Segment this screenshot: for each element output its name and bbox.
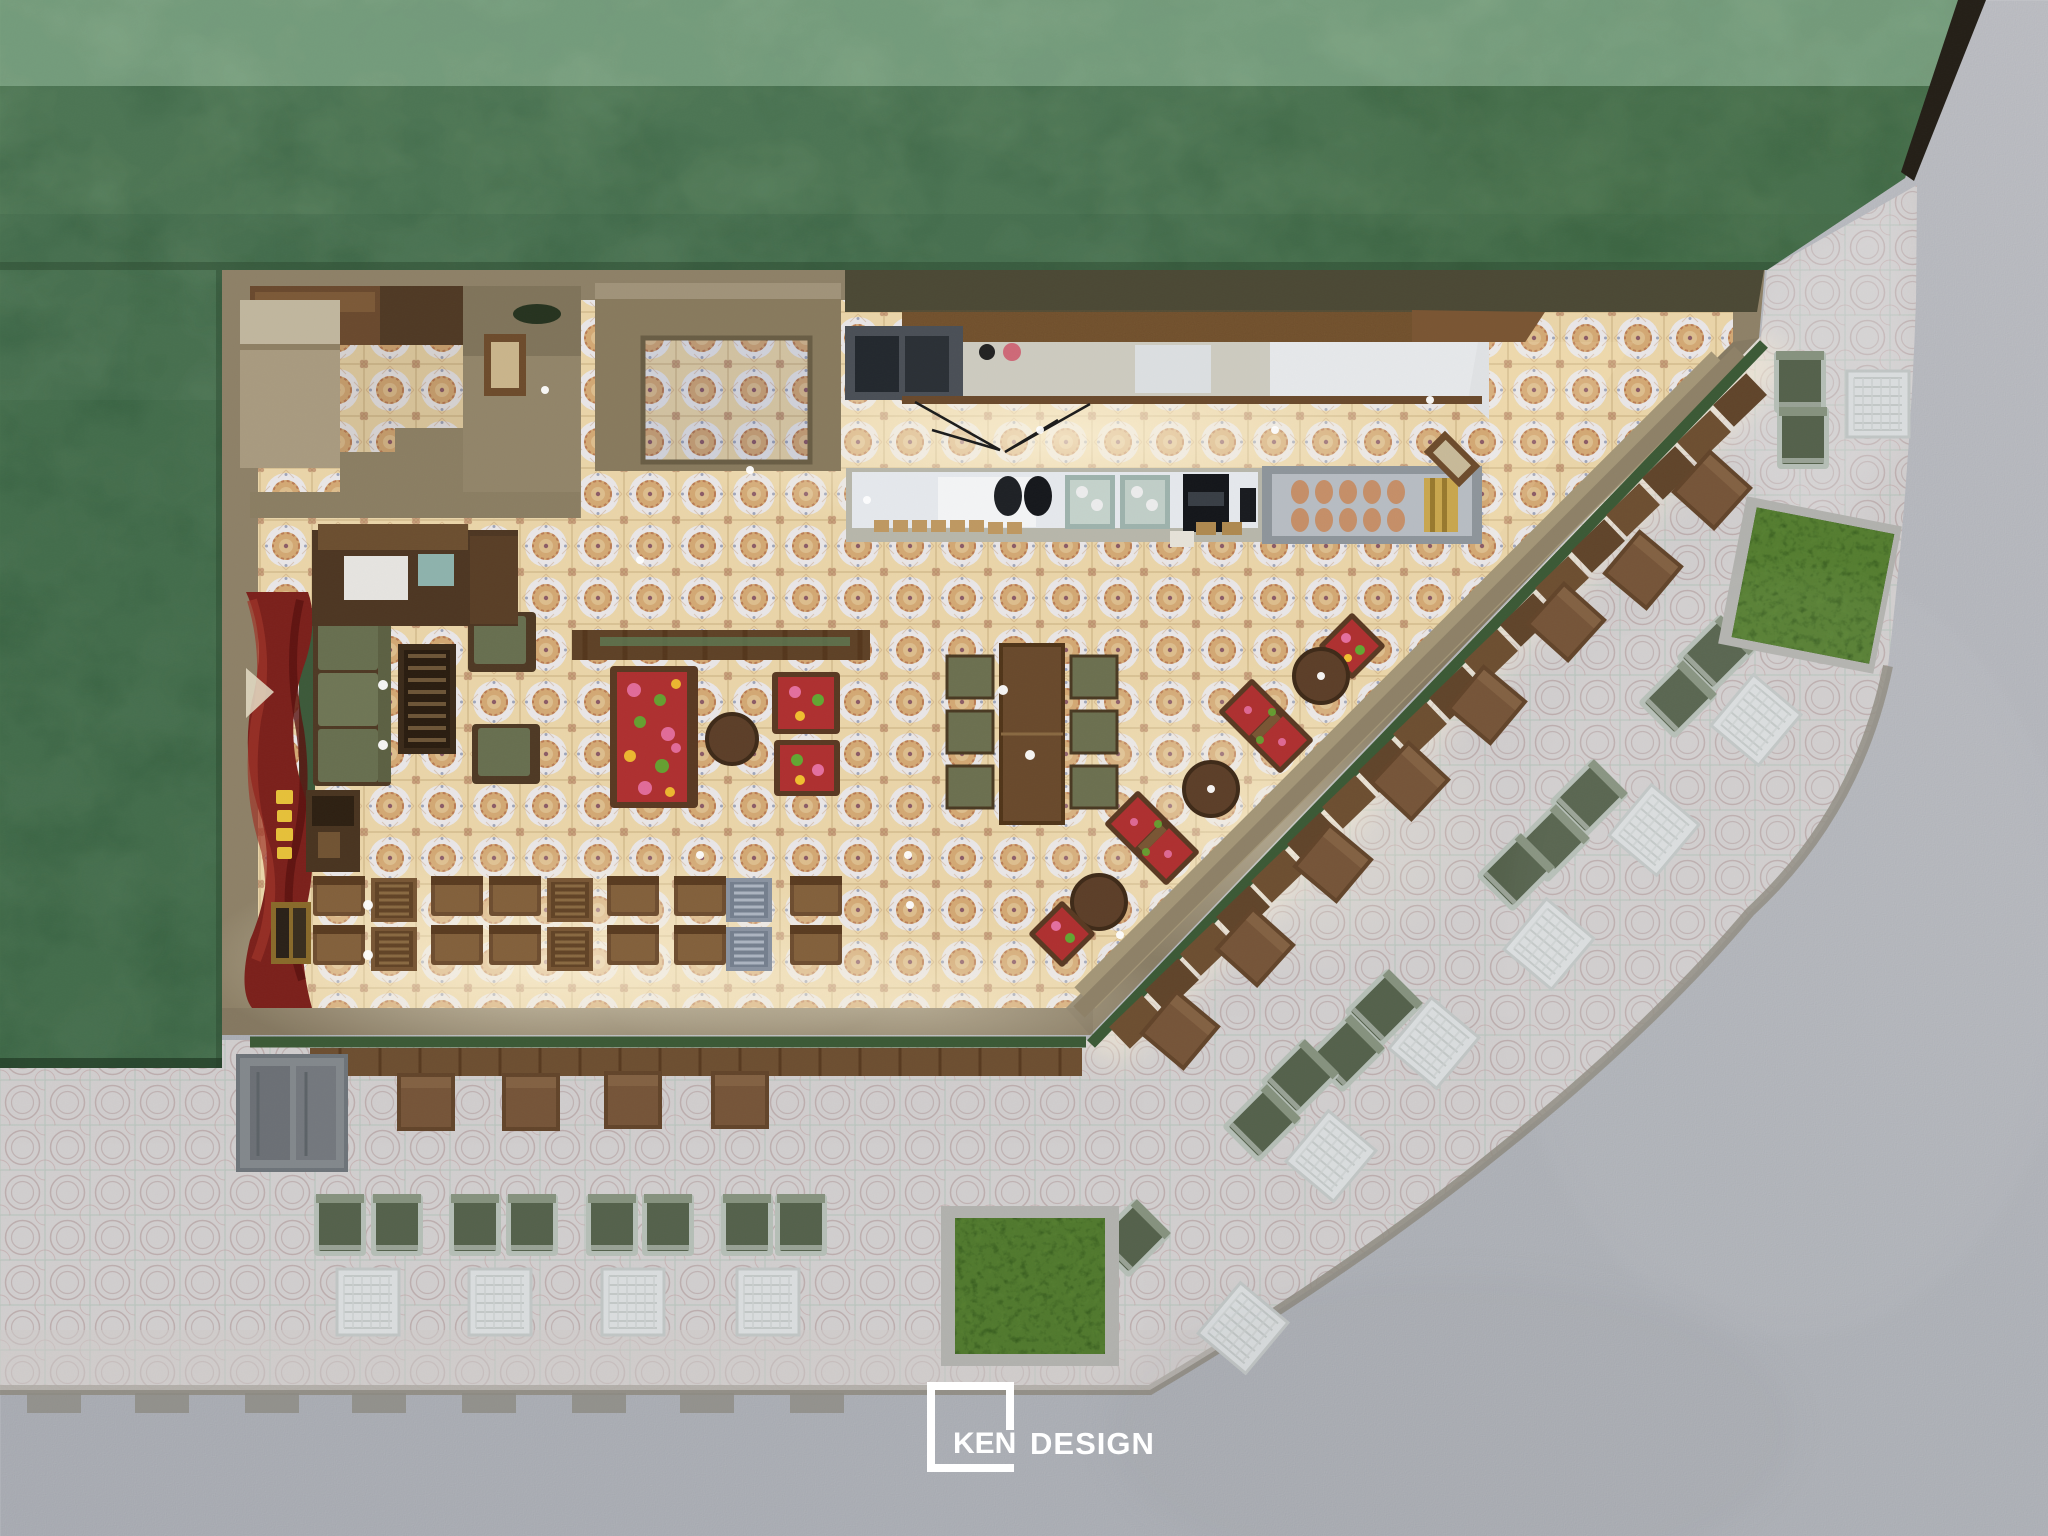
svg-text:DESIGN: DESIGN xyxy=(1030,1426,1155,1461)
svg-text:KEN: KEN xyxy=(953,1427,1016,1460)
